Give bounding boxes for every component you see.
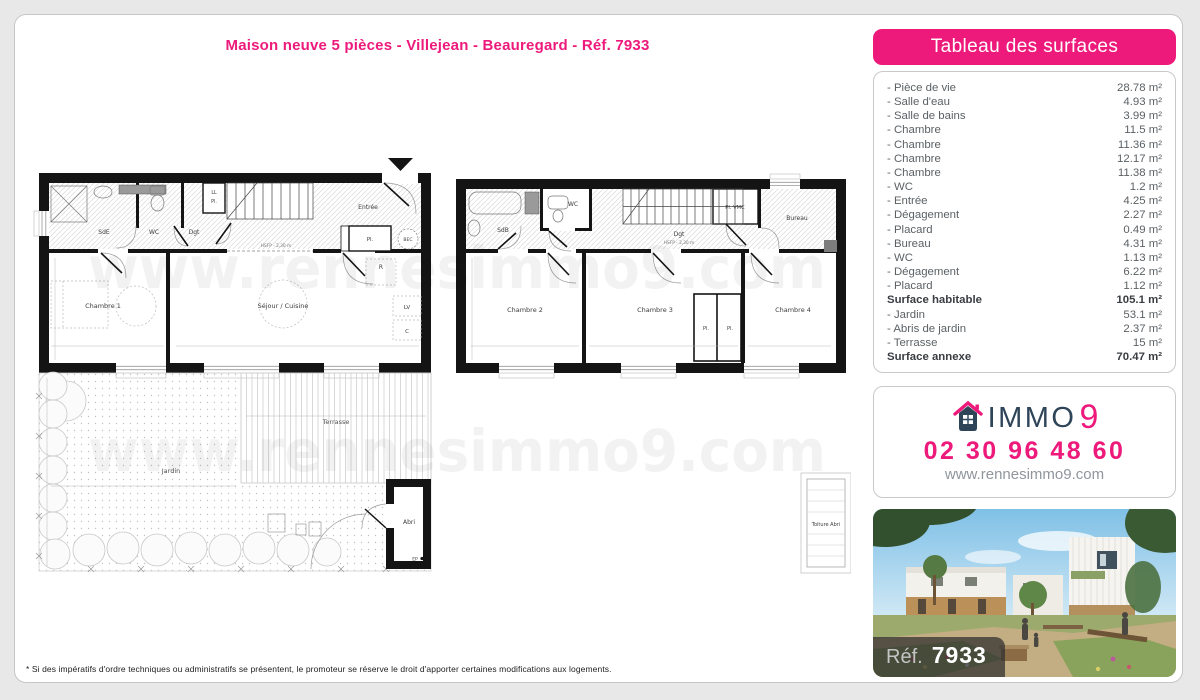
room-label-bureau: Bureau [786, 215, 808, 222]
ref-badge: Réf. 7933 [873, 637, 1005, 677]
legend-toiture-abri: Toiture Abri [811, 522, 840, 528]
ref-label: Réf. [886, 646, 923, 669]
room-label-pl-small: Pl. [211, 199, 217, 205]
brand-immo: IMMO [988, 404, 1077, 433]
toiture-abri-legend: Toiture Abri [801, 473, 851, 573]
footnote: * Si des impératifs d'ordre techniques o… [26, 664, 726, 674]
watermark-text-1: www.rennesimmo9.com [88, 234, 826, 302]
surface-row: - Pièce de vie28.78 m² [887, 81, 1162, 95]
surfaces-table: - Pièce de vie28.78 m²- Salle d'eau4.93 … [873, 71, 1176, 373]
surface-row: - Chambre11.36 m² [887, 138, 1162, 152]
room-label-chambre2: Chambre 2 [507, 306, 543, 314]
surface-row: - Bureau4.31 m² [887, 237, 1162, 251]
room-label-pl-a: Pl. [703, 326, 709, 332]
main-card: Maison neuve 5 pièces - Villejean - Beau… [14, 14, 1183, 683]
immo9-logo: IMMO9 [874, 400, 1175, 433]
room-label-chambre4: Chambre 4 [775, 306, 811, 314]
property-photo: Réf. 7933 [873, 509, 1176, 677]
website-link[interactable]: www.rennesimmo9.com [874, 466, 1175, 483]
surface-row: - Chambre12.17 m² [887, 152, 1162, 166]
right-column: Tableau des surfaces - Pièce de vie28.78… [873, 29, 1176, 677]
room-label-pl-vmc: Pl. VMC [725, 205, 745, 211]
area-label-abri: Abri [403, 519, 415, 526]
surface-row: Surface habitable105.1 m² [887, 293, 1162, 307]
ref-number: 7933 [932, 642, 987, 669]
surface-row: - Terrasse15 m² [887, 336, 1162, 350]
room-label-lv: LV [404, 305, 410, 311]
room-label-chambre1: Chambre 1 [85, 302, 121, 310]
surface-row: - Dégagement6.22 m² [887, 265, 1162, 279]
house-icon [951, 400, 985, 433]
room-label-c: C [405, 329, 409, 335]
surface-row: - Entrée4.25 m² [887, 194, 1162, 208]
phone-number[interactable]: 02 30 96 48 60 [874, 439, 1175, 464]
surface-row: Surface annexe70.47 m² [887, 350, 1162, 364]
surface-row: - Chambre11.38 m² [887, 166, 1162, 180]
label-ep: EP [412, 557, 418, 563]
surface-row: - Dégagement2.27 m² [887, 208, 1162, 222]
ground-floor-plan: SdE WC Dgt LL Pl. Entrée Pl. BEC R LV C … [34, 158, 431, 572]
room-label-sdb: SdB [497, 227, 509, 234]
contact-panel: IMMO9 02 30 96 48 60 www.rennesimmo9.com [873, 386, 1176, 498]
surface-row: - Salle d'eau4.93 m² [887, 95, 1162, 109]
room-label-pl-b: Pl. [727, 326, 733, 332]
surface-row: - WC1.13 m² [887, 251, 1162, 265]
brand-9: 9 [1080, 402, 1099, 433]
room-label-chambre3: Chambre 3 [637, 306, 673, 314]
entrance-arrow-icon [388, 158, 413, 171]
surfaces-header: Tableau des surfaces [873, 29, 1176, 65]
room-label-sejour: Séjour / Cuisine [258, 302, 309, 310]
surface-row: - Salle de bains3.99 m² [887, 109, 1162, 123]
surface-row: - Placard0.49 m² [887, 223, 1162, 237]
surface-row: - Placard1.12 m² [887, 279, 1162, 293]
room-label-ll: LL [211, 190, 217, 196]
surface-row: - Abris de jardin2.37 m² [887, 322, 1162, 336]
surface-row: - Jardin53.1 m² [887, 308, 1162, 322]
watermark-text-2: www.rennesimmo9.com [88, 417, 826, 485]
room-label-entree: Entrée [358, 204, 378, 211]
page-title: Maison neuve 5 pièces - Villejean - Beau… [15, 37, 860, 54]
surface-row: - WC1.2 m² [887, 180, 1162, 194]
surface-row: - Chambre11.5 m² [887, 123, 1162, 137]
floorplans-svg: SdE WC Dgt LL Pl. Entrée Pl. BEC R LV C … [31, 156, 851, 576]
room-label-wc-etage: WC [568, 201, 578, 208]
